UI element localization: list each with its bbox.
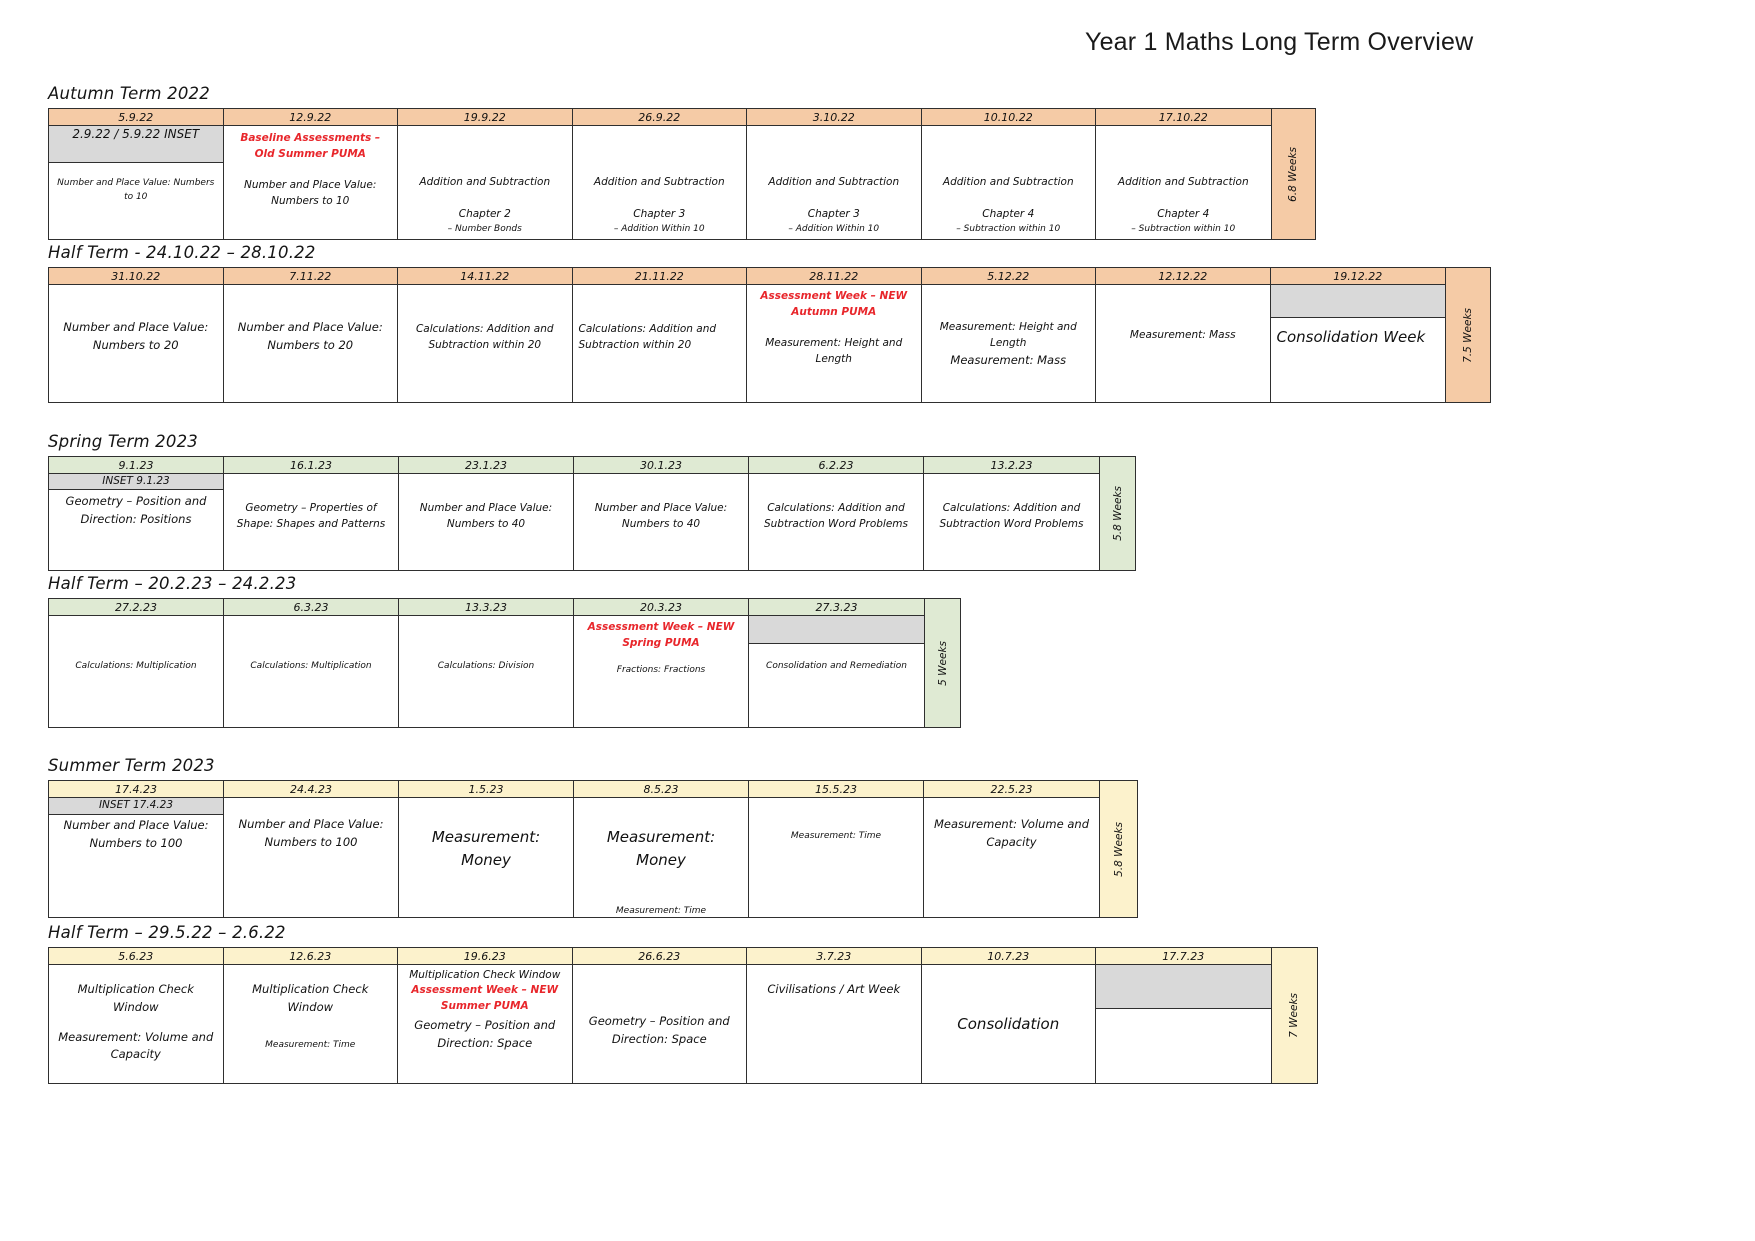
weeks-duration-label: 7.5 Weeks: [1462, 308, 1474, 363]
week-column: 6.3.23Calculations: Multiplication: [224, 599, 399, 727]
week-column: 5.6.23Multiplication Check WindowMeasure…: [49, 948, 224, 1083]
topic-text: Calculations: Addition and Subtraction W…: [749, 500, 923, 533]
week-column: 19.6.23Multiplication Check WindowAssess…: [398, 948, 573, 1083]
week-column: 1.5.23Measurement: Money: [399, 781, 574, 917]
topic-text: Chapter 2: [398, 206, 572, 222]
topic-text: Number and Place Value: Numbers to 10: [224, 177, 398, 210]
topic-text: Addition and Subtraction: [922, 174, 1096, 190]
week-cell-body: INSET 17.4.23Number and Place Value: Num…: [49, 798, 223, 917]
topic-text: Number and Place Value: Numbers to 40: [574, 500, 748, 533]
week-column: 10.10.22Addition and SubtractionChapter …: [922, 109, 1097, 239]
topic-text: Consolidation: [922, 1013, 1096, 1036]
term-table-wrap: 17.4.23INSET 17.4.23Number and Place Val…: [48, 780, 1648, 918]
weeks-duration-cell: 7.5 Weeks: [1446, 267, 1491, 403]
topic-text: Fractions: Fractions: [574, 664, 748, 678]
topic-text: Measurement: Mass: [922, 352, 1096, 370]
week-column: 27.2.23Calculations: Multiplication: [49, 599, 224, 727]
week-cell-body: Calculations: Multiplication: [49, 616, 223, 727]
topic-text: Chapter 3: [573, 206, 747, 222]
week-cell-body: Calculations: Multiplication: [224, 616, 398, 727]
week-cell-body: 2.9.22 / 5.9.22 INSETNumber and Place Va…: [49, 126, 223, 239]
topic-text: Measurement: Time: [574, 905, 748, 918]
week-column: 5.12.22Measurement: Height and LengthMea…: [922, 268, 1097, 402]
week-cell-body: Consolidation: [922, 965, 1096, 1083]
week-date-cell: 30.1.23: [574, 457, 748, 474]
week-table: 17.4.23INSET 17.4.23Number and Place Val…: [48, 780, 1100, 918]
week-cell-body: Consolidation and Remediation: [749, 616, 924, 727]
week-cell-body: Measurement: Mass: [1096, 285, 1270, 402]
week-cell-body: Geometry – Properties of Shape: Shapes a…: [224, 474, 398, 570]
assessment-note: Assessment Week – NEW Autumn PUMA: [747, 289, 921, 321]
week-column: 8.5.23Measurement: MoneyMeasurement: Tim…: [574, 781, 749, 917]
topic-text: Addition and Subtraction: [573, 174, 747, 190]
week-column: 15.5.23Measurement: Time: [749, 781, 924, 917]
week-column: 19.12.22Consolidation Week: [1271, 268, 1446, 402]
topic-text: – Number Bonds: [398, 223, 572, 237]
week-cell-body: Number and Place Value: Numbers to 100: [224, 798, 398, 917]
week-date-cell: 15.5.23: [749, 781, 923, 798]
page-title: Year 1 Maths Long Term Overview: [1085, 28, 1473, 57]
topic-text: Calculations: Multiplication: [224, 660, 398, 674]
topic-text: Multiplication Check Window: [224, 981, 398, 1017]
week-column: 27.3.23Consolidation and Remediation: [749, 599, 924, 727]
week-column: 23.1.23Number and Place Value: Numbers t…: [399, 457, 574, 570]
topic-text: Chapter 4: [922, 206, 1096, 222]
topic-text: Chapter 4: [1096, 206, 1271, 222]
term-section: Half Term – 29.5.22 – 2.6.225.6.23Multip…: [48, 923, 1648, 1084]
week-date-cell: 10.7.23: [922, 948, 1096, 965]
topic-text: Number and Place Value: Numbers to 20: [49, 319, 223, 355]
topic-text: Measurement: Height and Length: [747, 335, 921, 368]
topic-text: – Addition Within 10: [573, 223, 747, 237]
week-date-cell: 12.6.23: [224, 948, 398, 965]
topic-text: – Addition Within 10: [747, 223, 921, 237]
topic-text: Geometry – Properties of Shape: Shapes a…: [224, 500, 398, 533]
week-cell-body: Consolidation Week: [1271, 285, 1446, 402]
week-cell-body: Baseline Assessments – Old Summer PUMANu…: [224, 126, 398, 239]
week-cell-body: INSET 9.1.23Geometry – Position and Dire…: [49, 474, 223, 570]
week-date-cell: 16.1.23: [224, 457, 398, 474]
week-column: 30.1.23Number and Place Value: Numbers t…: [574, 457, 749, 570]
week-cell-body: Multiplication Check WindowMeasurement: …: [224, 965, 398, 1083]
week-date-cell: 19.9.22: [398, 109, 572, 126]
week-date-cell: 17.4.23: [49, 781, 223, 798]
topic-text: Calculations: Addition and Subtraction W…: [924, 500, 1099, 533]
topic-text: Multiplication Check Window: [398, 967, 572, 983]
term-table-wrap: 27.2.23Calculations: Multiplication6.3.2…: [48, 598, 1648, 728]
week-column: 3.7.23Civilisations / Art Week: [747, 948, 922, 1083]
week-column: 26.9.22Addition and SubtractionChapter 3…: [573, 109, 748, 239]
week-column: 14.11.22Calculations: Addition and Subtr…: [398, 268, 573, 402]
week-column: 31.10.22Number and Place Value: Numbers …: [49, 268, 224, 402]
term-table-wrap: 9.1.23INSET 9.1.23Geometry – Position an…: [48, 456, 1648, 571]
topic-text: Calculations: Addition and Subtraction w…: [573, 321, 747, 354]
week-cell-body: Assessment Week – NEW Spring PUMAFractio…: [574, 616, 748, 727]
topic-text: Calculations: Addition and Subtraction w…: [398, 321, 572, 354]
topic-text: Measurement: Height and Length: [922, 319, 1096, 352]
week-date-cell: 27.3.23: [749, 599, 924, 616]
topic-text: Number and Place Value: Numbers to 100: [49, 817, 223, 853]
inset-cell: INSET 9.1.23: [49, 474, 223, 490]
weeks-duration-label: 6.8 Weeks: [1287, 147, 1299, 202]
week-date-cell: 28.11.22: [747, 268, 921, 285]
term-table-wrap: 5.9.222.9.22 / 5.9.22 INSETNumber and Pl…: [48, 108, 1648, 240]
topic-text: Number and Place Value: Numbers to 100: [224, 816, 398, 852]
topic-text: Consolidation and Remediation: [749, 660, 924, 674]
assessment-note: Assessment Week – NEW Spring PUMA: [574, 620, 748, 652]
topic-text: Calculations: Multiplication: [49, 660, 223, 674]
week-cell-body: [1096, 965, 1271, 1083]
topic-text: Addition and Subtraction: [398, 174, 572, 190]
assessment-note: Baseline Assessments – Old Summer PUMA: [224, 131, 398, 163]
weeks-duration-label: 5 Weeks: [937, 641, 949, 686]
week-cell-body: Number and Place Value: Numbers to 20: [224, 285, 398, 402]
topic-text: Consolidation Week: [1271, 326, 1446, 349]
week-date-cell: 7.11.22: [224, 268, 398, 285]
week-cell-body: Calculations: Addition and Subtraction w…: [573, 285, 747, 402]
topic-text: Measurement: Money: [574, 826, 748, 873]
term-section: Half Term - 24.10.22 – 28.10.2231.10.22N…: [48, 243, 1648, 403]
week-cell-body: Geometry – Position and Direction: Space: [573, 965, 747, 1083]
week-table: 9.1.23INSET 9.1.23Geometry – Position an…: [48, 456, 1100, 571]
topic-text: Measurement: Volume and Capacity: [924, 816, 1099, 852]
week-column: 19.9.22Addition and SubtractionChapter 2…: [398, 109, 573, 239]
week-date-cell: 6.2.23: [749, 457, 923, 474]
topic-text: Number and Place Value: Numbers to 20: [224, 319, 398, 355]
weeks-duration-cell: 7 Weeks: [1272, 947, 1318, 1084]
week-cell-body: Addition and SubtractionChapter 3– Addit…: [573, 126, 747, 239]
topic-text: Geometry – Position and Direction: Posit…: [49, 493, 223, 529]
empty-grey-cell: [1271, 285, 1446, 318]
topic-text: Measurement: Volume and Capacity: [49, 1029, 223, 1065]
topic-text: Measurement: Money: [399, 826, 573, 873]
term-section: Half Term – 20.2.23 – 24.2.2327.2.23Calc…: [48, 574, 1648, 728]
week-date-cell: 5.9.22: [49, 109, 223, 126]
week-column: 9.1.23INSET 9.1.23Geometry – Position an…: [49, 457, 224, 570]
week-column: 10.7.23Consolidation: [922, 948, 1097, 1083]
term-heading: Autumn Term 2022: [48, 84, 1648, 103]
term-heading: Half Term - 24.10.22 – 28.10.22: [48, 243, 1648, 262]
week-column: 12.6.23Multiplication Check WindowMeasur…: [224, 948, 399, 1083]
term-table-wrap: 5.6.23Multiplication Check WindowMeasure…: [48, 947, 1648, 1084]
inset-cell: 2.9.22 / 5.9.22 INSET: [49, 126, 223, 163]
week-column: 6.2.23Calculations: Addition and Subtrac…: [749, 457, 924, 570]
week-date-cell: 5.6.23: [49, 948, 223, 965]
week-column: 26.6.23Geometry – Position and Direction…: [573, 948, 748, 1083]
week-date-cell: 1.5.23: [399, 781, 573, 798]
week-column: 13.3.23Calculations: Division: [399, 599, 574, 727]
topic-text: Chapter 3: [747, 206, 921, 222]
topic-text: Geometry – Position and Direction: Space: [573, 1013, 747, 1049]
topic-text: Geometry – Position and Direction: Space: [398, 1017, 572, 1053]
topic-text: – Subtraction within 10: [1096, 223, 1271, 237]
week-column: 17.7.23: [1096, 948, 1271, 1083]
weeks-duration-cell: 5 Weeks: [925, 598, 961, 728]
topic-text: Addition and Subtraction: [1096, 174, 1271, 190]
week-cell-body: Addition and SubtractionChapter 3– Addit…: [747, 126, 921, 239]
week-date-cell: 31.10.22: [49, 268, 223, 285]
inset-cell: INSET 17.4.23: [49, 798, 223, 815]
week-date-cell: 13.3.23: [399, 599, 573, 616]
topic-text: Measurement: Time: [749, 830, 923, 844]
week-column: 13.2.23Calculations: Addition and Subtra…: [924, 457, 1099, 570]
topic-text: Number and Place Value: Numbers to 40: [399, 500, 573, 533]
week-column: 7.11.22Number and Place Value: Numbers t…: [224, 268, 399, 402]
week-column: 17.4.23INSET 17.4.23Number and Place Val…: [49, 781, 224, 917]
week-cell-body: Number and Place Value: Numbers to 40: [399, 474, 573, 570]
week-date-cell: 26.6.23: [573, 948, 747, 965]
week-cell-body: Assessment Week – NEW Autumn PUMAMeasure…: [747, 285, 921, 402]
week-date-cell: 26.9.22: [573, 109, 747, 126]
week-date-cell: 19.6.23: [398, 948, 572, 965]
weeks-duration-label: 7 Weeks: [1288, 993, 1300, 1038]
week-cell-body: Addition and SubtractionChapter 4– Subtr…: [922, 126, 1096, 239]
week-date-cell: 6.3.23: [224, 599, 398, 616]
week-date-cell: 3.10.22: [747, 109, 921, 126]
week-date-cell: 14.11.22: [398, 268, 572, 285]
weeks-duration-label: 5.8 Weeks: [1112, 486, 1124, 541]
week-cell-body: Measurement: Height and LengthMeasuremen…: [922, 285, 1096, 402]
week-column: 21.11.22Calculations: Addition and Subtr…: [573, 268, 748, 402]
week-cell-body: Calculations: Addition and Subtraction W…: [924, 474, 1099, 570]
weeks-duration-cell: 5.8 Weeks: [1100, 456, 1136, 571]
topic-text: Measurement: Mass: [1096, 327, 1270, 343]
topic-text: Multiplication Check Window: [49, 981, 223, 1017]
week-date-cell: 20.3.23: [574, 599, 748, 616]
week-cell-body: Number and Place Value: Numbers to 20: [49, 285, 223, 402]
document-page: Year 1 Maths Long Term Overview Autumn T…: [0, 0, 1755, 1241]
week-date-cell: 21.11.22: [573, 268, 747, 285]
week-column: 5.9.222.9.22 / 5.9.22 INSETNumber and Pl…: [49, 109, 224, 239]
term-section: Autumn Term 20225.9.222.9.22 / 5.9.22 IN…: [48, 84, 1648, 240]
week-column: 28.11.22Assessment Week – NEW Autumn PUM…: [747, 268, 922, 402]
week-table: 5.6.23Multiplication Check WindowMeasure…: [48, 947, 1272, 1084]
weeks-duration-cell: 6.8 Weeks: [1272, 108, 1316, 240]
week-column: 17.10.22Addition and SubtractionChapter …: [1096, 109, 1271, 239]
topic-text: Number and Place Value: Numbers to 10: [49, 177, 223, 205]
week-cell-body: Measurement: Time: [749, 798, 923, 917]
term-section: Summer Term 202317.4.23INSET 17.4.23Numb…: [48, 756, 1648, 918]
week-column: 24.4.23Number and Place Value: Numbers t…: [224, 781, 399, 917]
week-date-cell: 5.12.22: [922, 268, 1096, 285]
weeks-duration-label: 5.8 Weeks: [1113, 822, 1125, 877]
week-cell-body: Multiplication Check WindowAssessment We…: [398, 965, 572, 1083]
term-heading: Half Term – 29.5.22 – 2.6.22: [48, 923, 1648, 942]
week-cell-body: Measurement: MoneyMeasurement: Time: [574, 798, 748, 917]
week-cell-body: Civilisations / Art Week: [747, 965, 921, 1083]
topic-text: Addition and Subtraction: [747, 174, 921, 190]
week-cell-body: Calculations: Division: [399, 616, 573, 727]
week-cell-body: Measurement: Volume and Capacity: [924, 798, 1099, 917]
week-cell-body: Calculations: Addition and Subtraction W…: [749, 474, 923, 570]
week-date-cell: 27.2.23: [49, 599, 223, 616]
week-column: 16.1.23Geometry – Properties of Shape: S…: [224, 457, 399, 570]
term-table-wrap: 31.10.22Number and Place Value: Numbers …: [48, 267, 1648, 403]
week-column: 22.5.23Measurement: Volume and Capacity: [924, 781, 1099, 917]
term-heading: Spring Term 2023: [48, 432, 1648, 451]
week-column: 12.12.22Measurement: Mass: [1096, 268, 1271, 402]
week-column: 20.3.23Assessment Week – NEW Spring PUMA…: [574, 599, 749, 727]
week-column: 3.10.22Addition and SubtractionChapter 3…: [747, 109, 922, 239]
week-date-cell: 23.1.23: [399, 457, 573, 474]
week-date-cell: 3.7.23: [747, 948, 921, 965]
empty-grey-cell: [749, 616, 924, 644]
week-cell-body: Number and Place Value: Numbers to 40: [574, 474, 748, 570]
weeks-duration-cell: 5.8 Weeks: [1100, 780, 1138, 918]
week-cell-body: Measurement: Money: [399, 798, 573, 917]
week-date-cell: 17.10.22: [1096, 109, 1271, 126]
topic-text: Calculations: Division: [399, 660, 573, 674]
week-table: 27.2.23Calculations: Multiplication6.3.2…: [48, 598, 925, 728]
week-column: 12.9.22Baseline Assessments – Old Summer…: [224, 109, 399, 239]
topic-text: Civilisations / Art Week: [747, 981, 921, 999]
week-date-cell: 24.4.23: [224, 781, 398, 798]
week-cell-body: Addition and SubtractionChapter 2– Numbe…: [398, 126, 572, 239]
week-cell-body: Addition and SubtractionChapter 4– Subtr…: [1096, 126, 1271, 239]
term-heading: Summer Term 2023: [48, 756, 1648, 775]
week-date-cell: 8.5.23: [574, 781, 748, 798]
week-date-cell: 9.1.23: [49, 457, 223, 474]
week-table: 5.9.222.9.22 / 5.9.22 INSETNumber and Pl…: [48, 108, 1272, 240]
week-cell-body: Multiplication Check WindowMeasurement: …: [49, 965, 223, 1083]
term-heading: Half Term – 20.2.23 – 24.2.23: [48, 574, 1648, 593]
topic-text: Measurement: Time: [224, 1039, 398, 1053]
week-cell-body: Calculations: Addition and Subtraction w…: [398, 285, 572, 402]
week-date-cell: 10.10.22: [922, 109, 1096, 126]
week-table: 31.10.22Number and Place Value: Numbers …: [48, 267, 1446, 403]
assessment-note: Assessment Week – NEW Summer PUMA: [398, 983, 572, 1015]
week-date-cell: 13.2.23: [924, 457, 1099, 474]
schedule-content: Autumn Term 20225.9.222.9.22 / 5.9.22 IN…: [48, 84, 1648, 1084]
week-date-cell: 22.5.23: [924, 781, 1099, 798]
week-date-cell: 12.9.22: [224, 109, 398, 126]
week-date-cell: 19.12.22: [1271, 268, 1446, 285]
empty-grey-cell: [1096, 965, 1271, 1009]
topic-text: – Subtraction within 10: [922, 223, 1096, 237]
term-section: Spring Term 20239.1.23INSET 9.1.23Geomet…: [48, 432, 1648, 571]
week-date-cell: 12.12.22: [1096, 268, 1270, 285]
week-date-cell: 17.7.23: [1096, 948, 1271, 965]
